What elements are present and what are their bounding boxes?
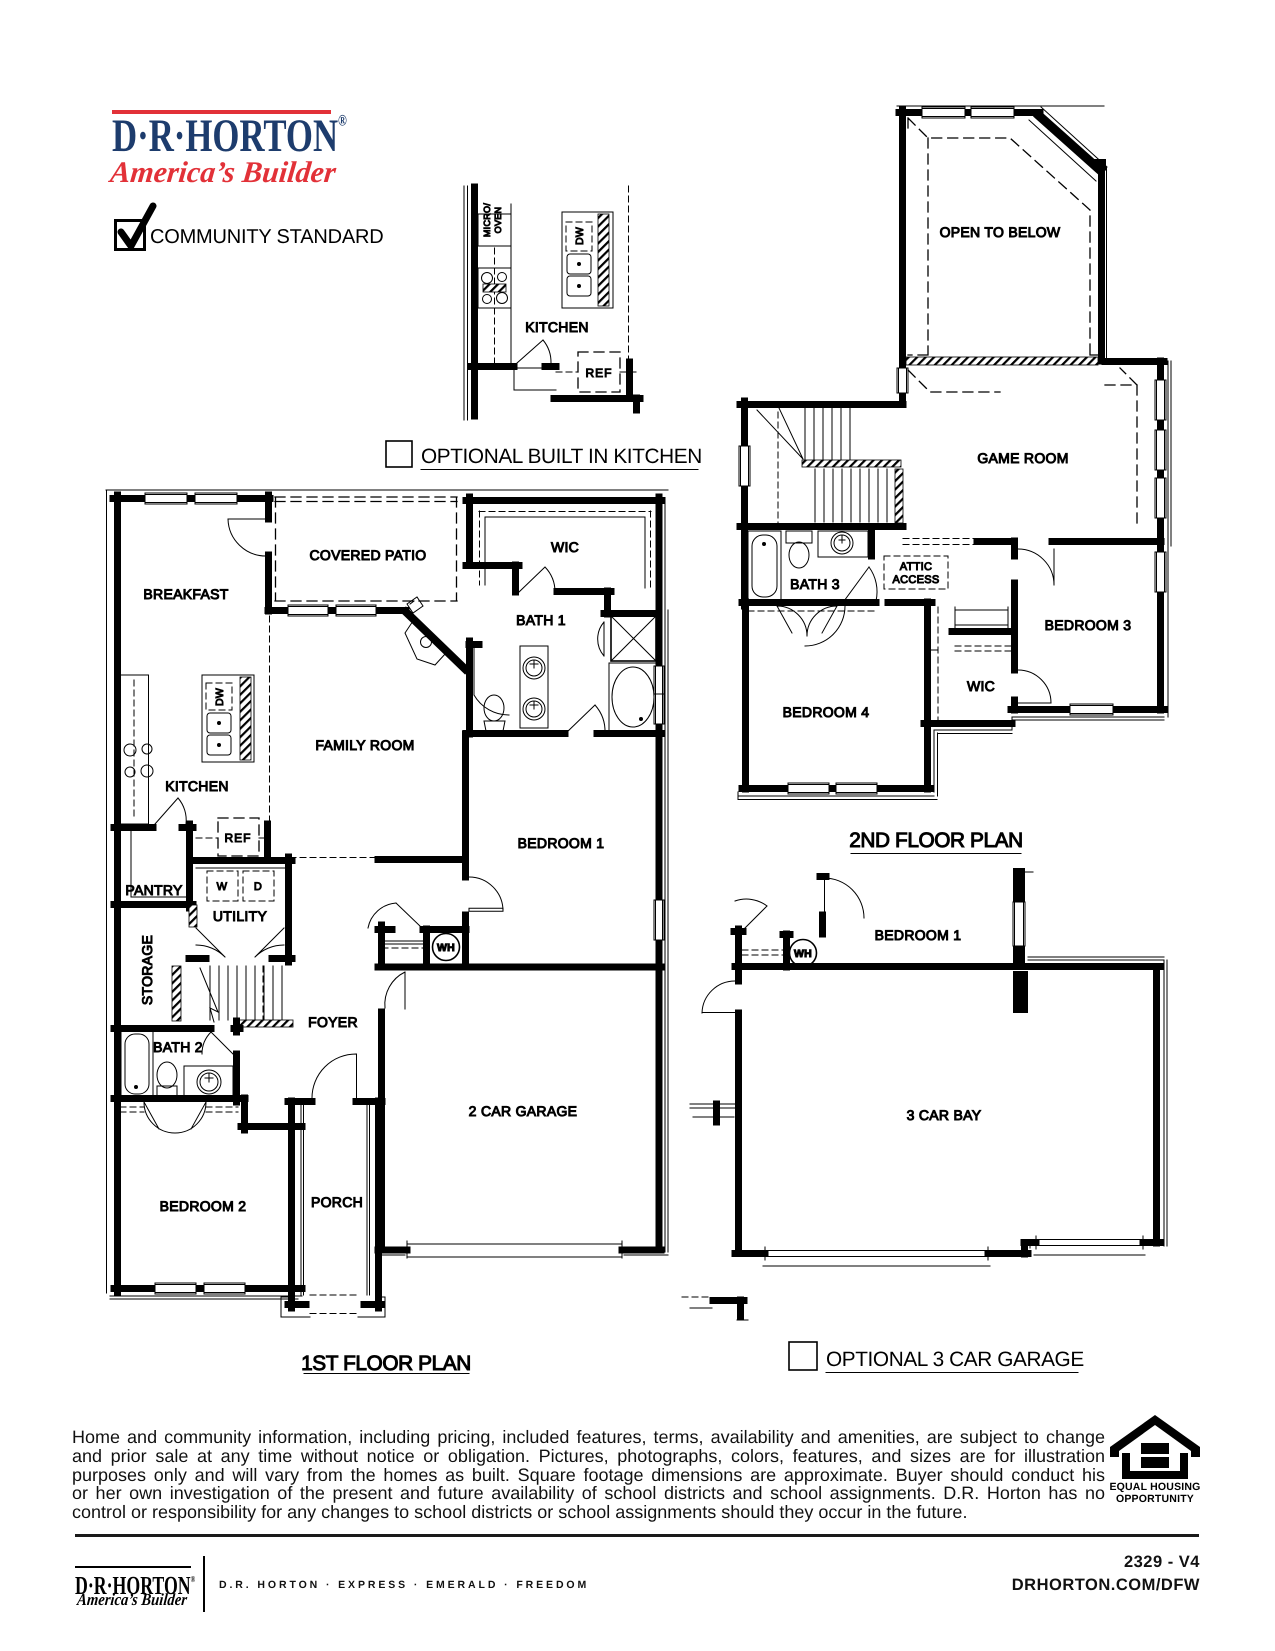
svg-text:OPEN TO BELOW: OPEN TO BELOW: [940, 224, 1061, 240]
svg-text:D: D: [254, 881, 262, 893]
svg-text:UTILITY: UTILITY: [213, 908, 268, 924]
svg-text:BEDROOM 1: BEDROOM 1: [518, 835, 605, 851]
svg-text:2 CAR GARAGE: 2 CAR GARAGE: [469, 1103, 578, 1119]
svg-text:MICRO/: MICRO/: [482, 203, 492, 237]
svg-text:ACCESS: ACCESS: [892, 574, 939, 586]
svg-text:KITCHEN: KITCHEN: [165, 778, 229, 794]
svg-text:3 CAR BAY: 3 CAR BAY: [907, 1107, 982, 1123]
svg-text:OPPORTUNITY: OPPORTUNITY: [1116, 1493, 1194, 1505]
svg-text:OVEN: OVEN: [493, 207, 503, 234]
svg-text:BEDROOM 2: BEDROOM 2: [160, 1198, 247, 1214]
svg-text:ATTIC: ATTIC: [900, 561, 932, 573]
svg-text:BATH 2: BATH 2: [153, 1039, 203, 1055]
svg-text:COVERED PATIO: COVERED PATIO: [310, 547, 427, 563]
svg-text:WIC: WIC: [967, 678, 995, 694]
svg-text:BEDROOM 1: BEDROOM 1: [875, 927, 962, 943]
svg-text:BEDROOM 4: BEDROOM 4: [783, 704, 870, 720]
svg-text:GAME ROOM: GAME ROOM: [977, 450, 1068, 466]
svg-text:BATH 1: BATH 1: [516, 612, 566, 628]
svg-text:KITCHEN: KITCHEN: [525, 319, 589, 335]
svg-text:WH: WH: [794, 948, 812, 960]
svg-text:FAMILY ROOM: FAMILY ROOM: [315, 737, 414, 753]
svg-text:DW: DW: [214, 688, 226, 706]
svg-text:REF: REF: [586, 366, 613, 380]
svg-text:STORAGE: STORAGE: [139, 935, 155, 1005]
svg-text:OPTIONAL BUILT IN KITCHEN: OPTIONAL BUILT IN KITCHEN: [421, 445, 702, 468]
svg-text:OPTIONAL 3 CAR GARAGE: OPTIONAL 3 CAR GARAGE: [826, 1348, 1084, 1371]
svg-text:BATH 3: BATH 3: [790, 576, 840, 592]
svg-text:REF: REF: [225, 831, 252, 845]
svg-text:BREAKFAST: BREAKFAST: [143, 586, 228, 602]
svg-text:DW: DW: [574, 227, 586, 245]
svg-text:EQUAL HOUSING: EQUAL HOUSING: [1109, 1481, 1200, 1493]
svg-text:W: W: [217, 881, 228, 893]
svg-text:1ST FLOOR PLAN: 1ST FLOOR PLAN: [301, 1352, 471, 1375]
svg-text:FOYER: FOYER: [308, 1014, 358, 1030]
svg-text:PORCH: PORCH: [311, 1194, 363, 1210]
svg-text:2ND FLOOR PLAN: 2ND FLOOR PLAN: [849, 829, 1023, 852]
svg-text:PANTRY: PANTRY: [125, 882, 183, 898]
svg-text:BEDROOM 3: BEDROOM 3: [1045, 617, 1132, 633]
svg-text:WH: WH: [437, 942, 455, 954]
svg-text:WIC: WIC: [551, 539, 579, 555]
